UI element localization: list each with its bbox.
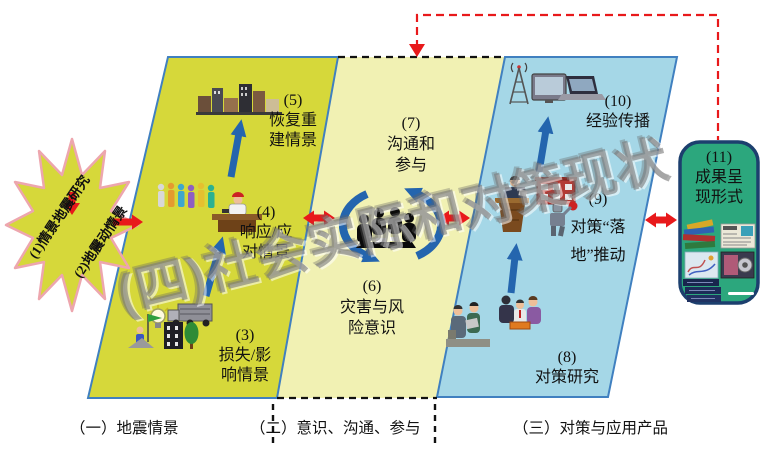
node-10-number: (10) [576, 92, 660, 112]
node-4-number: (4) [228, 203, 304, 223]
node-10-label: (10) 经验传播 [576, 92, 660, 132]
footer-section-3: （三）对策与应用产品 [513, 416, 668, 438]
node-8-number: (8) [525, 348, 609, 368]
node-7-label: (7) 沟通和 参与 [373, 114, 449, 176]
node-6-label: (6) 灾害与风 险意识 [328, 277, 416, 339]
media-player-icon [721, 252, 754, 278]
node-7-number: (7) [373, 114, 449, 135]
node-9-number: (9) [552, 186, 644, 214]
diagram-root: (1)情景地震研究 (2)地震动情景 (5) 恢复重 建情景 (4) 响应/应 … [0, 0, 767, 450]
damaged-building-icon [164, 322, 183, 349]
node-9-label: (9) 对策“落 地”推动 [552, 186, 644, 270]
stage3-results-double-arrow [645, 213, 677, 228]
node-11-label: (11) 成果呈 现形式 [681, 148, 757, 208]
node-3-number: (3) [207, 326, 283, 346]
node-11-number: (11) [681, 148, 757, 168]
node-5-number: (5) [255, 91, 331, 111]
report-stack-icon [683, 279, 721, 302]
footer-section-2: （二）意识、沟通、参与 [250, 416, 421, 438]
node-6-number: (6) [328, 277, 416, 298]
newspaper-icon [721, 224, 755, 248]
node-3-label: (3) 损失/影 响情景 [207, 326, 283, 386]
feedback-arrowhead [409, 44, 425, 57]
node-8-label: (8) 对策研究 [525, 348, 609, 388]
node-4-label: (4) 响应/应 对情景 [228, 203, 304, 263]
pen-icon [728, 292, 754, 295]
arrow-8-to-9 [511, 257, 515, 293]
node-5-label: (5) 恢复重 建情景 [255, 91, 331, 151]
map-icon [685, 252, 718, 278]
footer-section-1: （一）地震情景 [70, 416, 179, 438]
